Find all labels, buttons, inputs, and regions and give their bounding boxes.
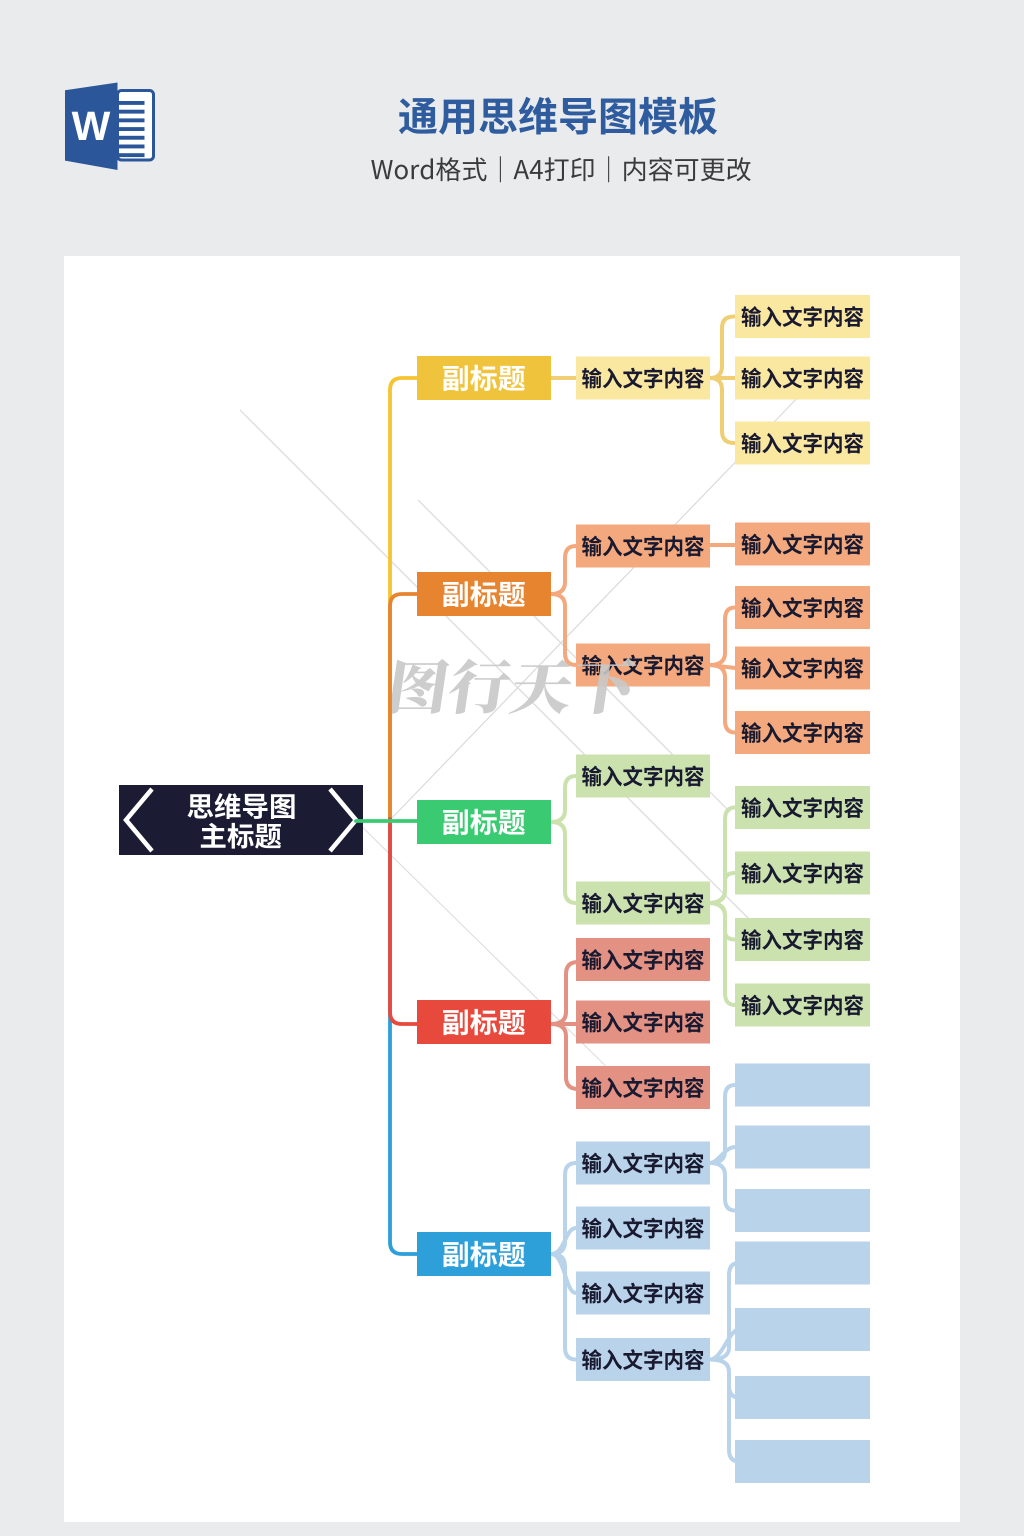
svg-text:W: W bbox=[72, 103, 111, 149]
